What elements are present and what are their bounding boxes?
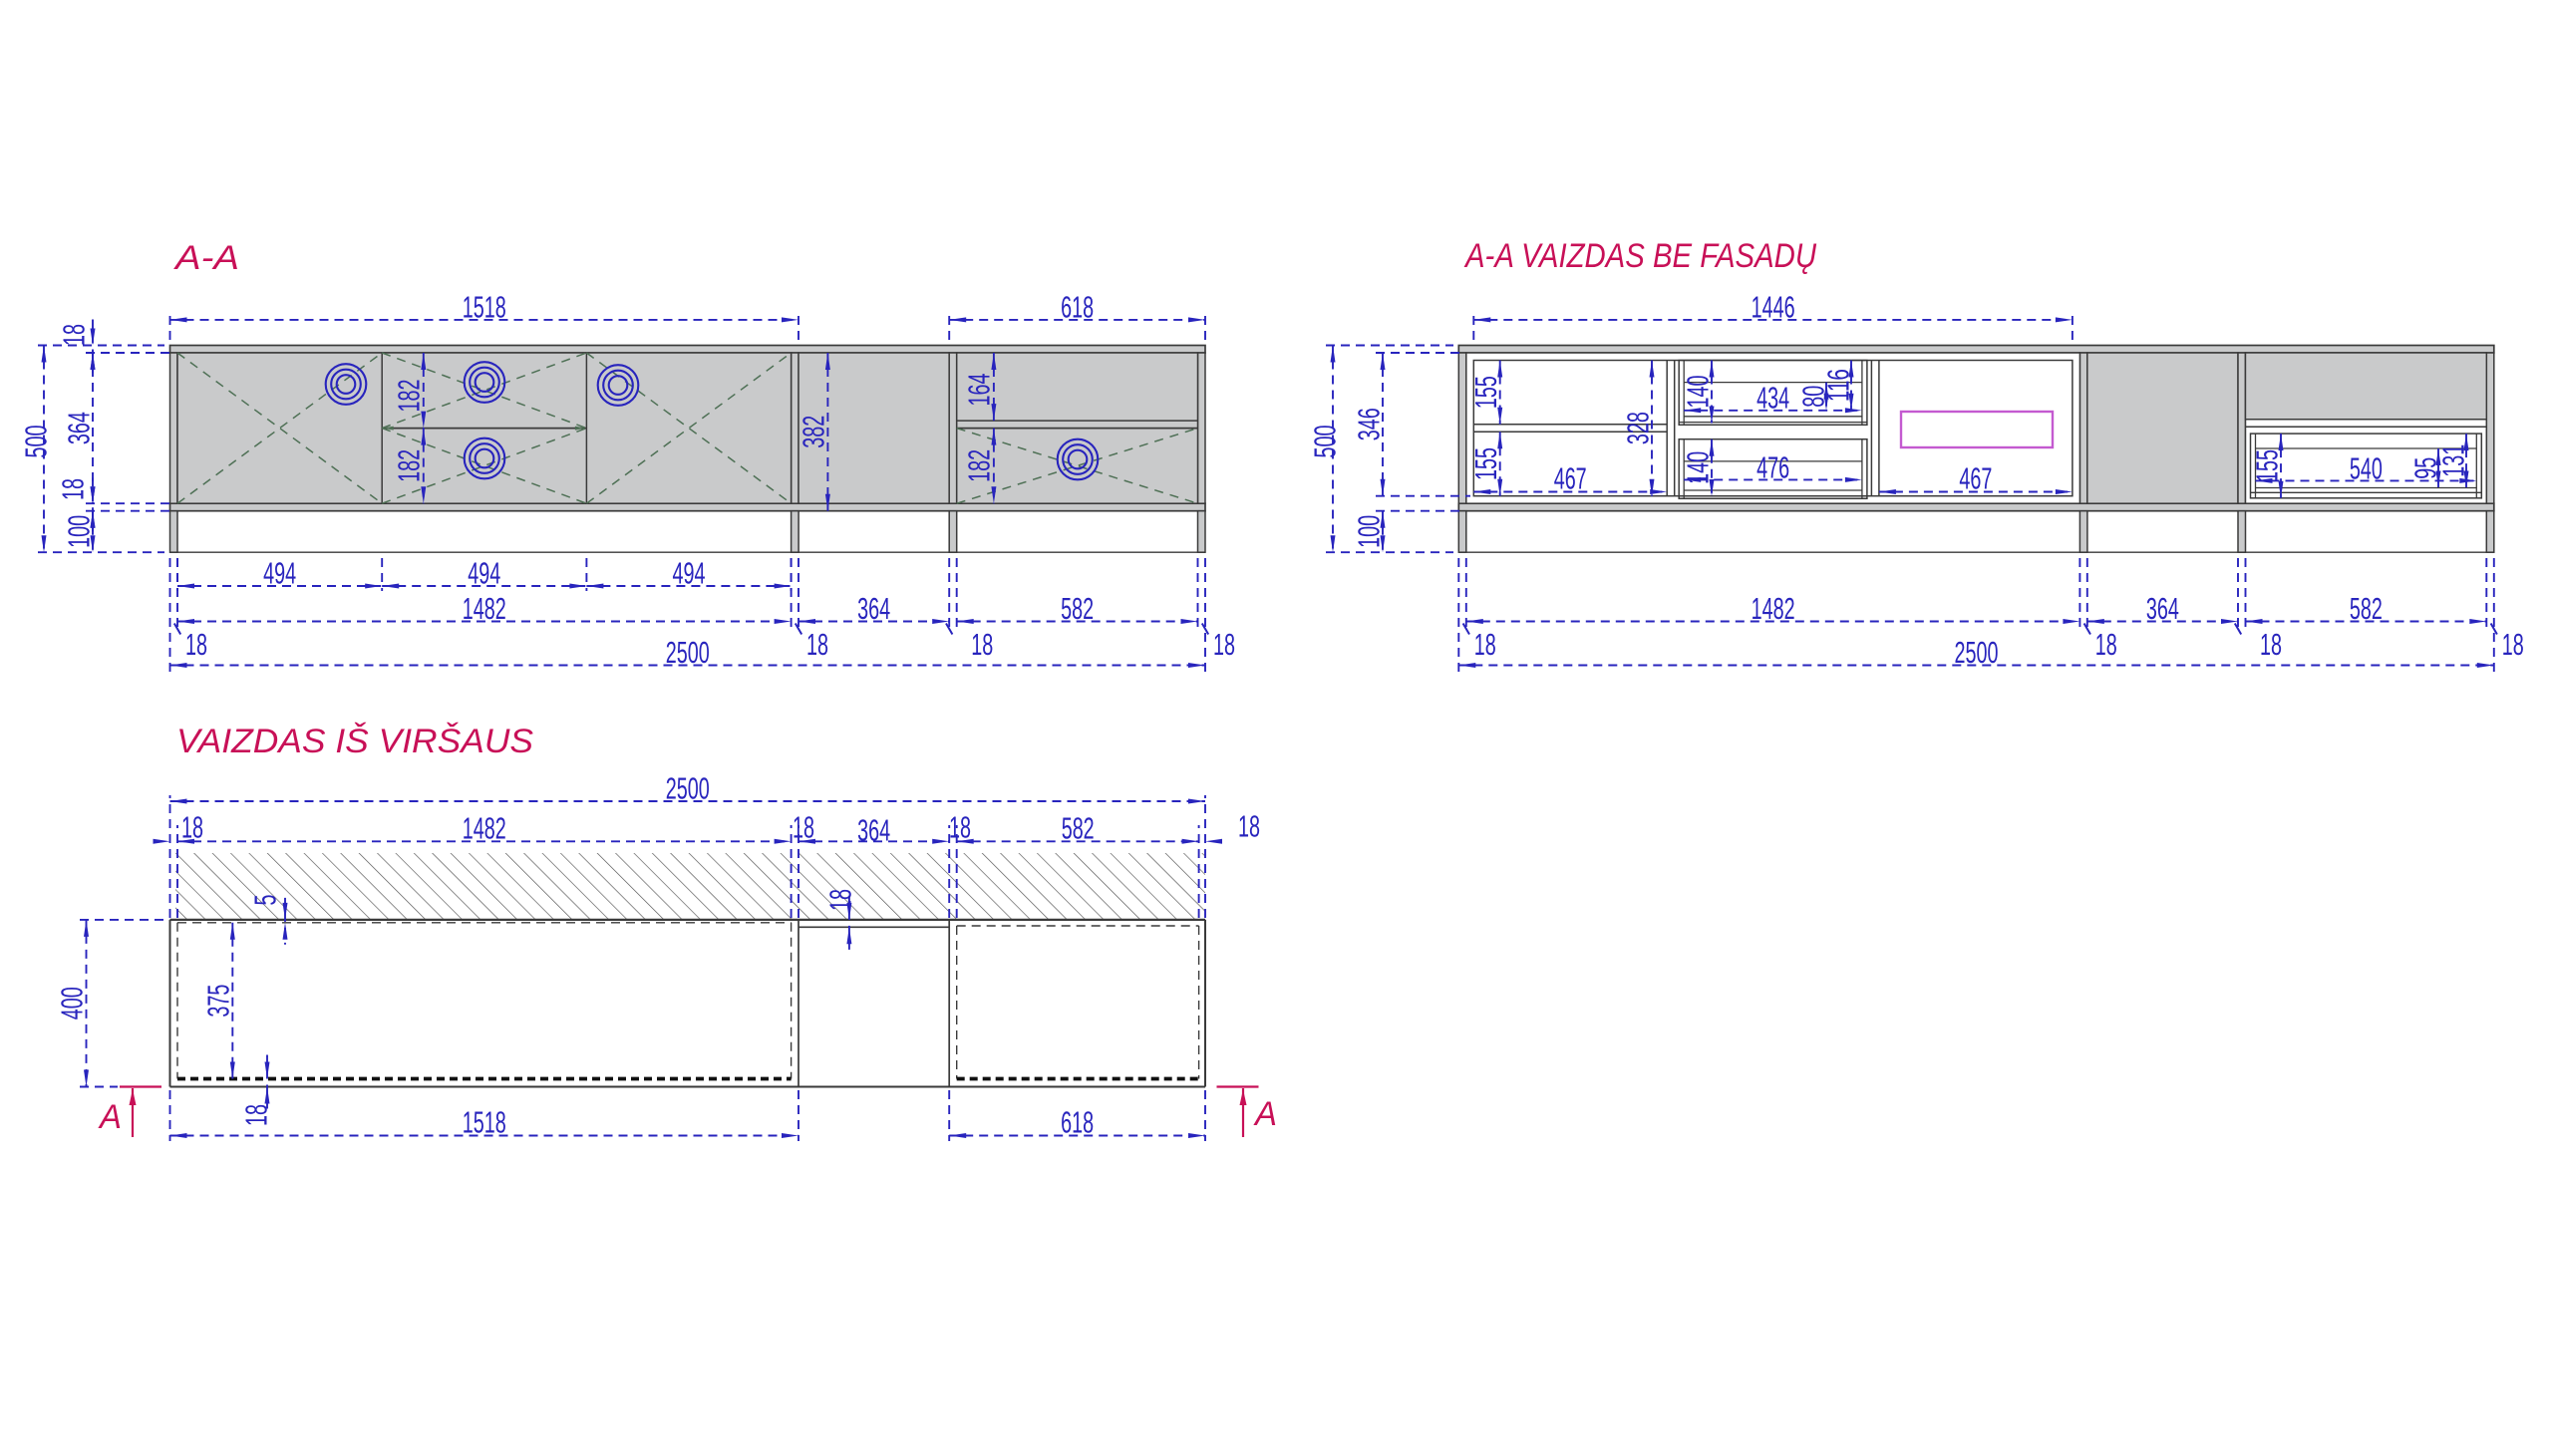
svg-text:618: 618 [1061,289,1094,324]
svg-text:18: 18 [239,1104,274,1126]
svg-text:1482: 1482 [463,591,506,626]
svg-text:18: 18 [57,324,92,346]
svg-text:18: 18 [56,478,91,500]
svg-text:155: 155 [1468,376,1503,409]
svg-text:364: 364 [62,412,97,444]
svg-text:18: 18 [181,810,203,845]
svg-text:155: 155 [1468,447,1503,480]
svg-text:116: 116 [1821,369,1856,402]
svg-text:18: 18 [1213,627,1235,662]
svg-text:494: 494 [263,556,296,591]
svg-text:434: 434 [1756,381,1789,416]
svg-text:18: 18 [806,627,828,662]
svg-text:155: 155 [2250,449,2285,482]
svg-text:500: 500 [19,426,54,458]
svg-text:467: 467 [1959,461,1992,496]
svg-text:100: 100 [62,515,97,548]
svg-text:140: 140 [1681,376,1716,409]
svg-text:364: 364 [2146,591,2179,626]
svg-text:494: 494 [468,556,500,591]
svg-text:1518: 1518 [463,1105,506,1140]
svg-text:18: 18 [2260,627,2282,662]
svg-text:467: 467 [1554,461,1587,496]
svg-text:182: 182 [392,380,427,413]
svg-text:182: 182 [392,449,427,482]
svg-text:1482: 1482 [463,811,506,846]
svg-text:346: 346 [1352,408,1387,440]
svg-text:540: 540 [2350,451,2383,486]
svg-text:500: 500 [1308,426,1343,458]
svg-text:A: A [1253,1095,1277,1133]
svg-text:18: 18 [1474,627,1496,662]
svg-text:2500: 2500 [666,635,710,670]
svg-text:18: 18 [823,889,858,911]
svg-text:18: 18 [971,627,993,662]
svg-text:364: 364 [857,591,890,626]
svg-text:18: 18 [793,810,814,845]
svg-text:328: 328 [1621,412,1656,444]
svg-text:18: 18 [1238,809,1260,844]
svg-text:18: 18 [2502,627,2524,662]
svg-text:364: 364 [857,813,890,848]
svg-text:18: 18 [2095,627,2117,662]
svg-text:A-A: A-A [173,239,239,277]
svg-text:18: 18 [949,810,971,845]
svg-text:2500: 2500 [1955,635,1999,670]
svg-text:476: 476 [1756,450,1789,485]
svg-text:582: 582 [1062,811,1095,846]
svg-text:582: 582 [2350,591,2383,626]
svg-text:1518: 1518 [463,289,506,324]
svg-text:382: 382 [797,416,831,448]
svg-text:100: 100 [1352,515,1387,548]
svg-text:182: 182 [962,449,997,482]
svg-text:131: 131 [2436,444,2471,477]
svg-text:400: 400 [55,987,90,1019]
svg-text:494: 494 [673,556,706,591]
svg-text:164: 164 [962,374,997,407]
svg-text:582: 582 [1061,591,1094,626]
svg-text:2500: 2500 [666,771,710,806]
svg-text:A: A [98,1098,122,1136]
svg-text:1446: 1446 [1752,289,1795,324]
svg-text:A-A VAIZDAS BE FASADŲ: A-A VAIZDAS BE FASADŲ [1463,237,1816,275]
svg-text:5: 5 [248,895,283,906]
svg-text:375: 375 [201,985,236,1018]
svg-text:618: 618 [1061,1105,1094,1140]
svg-text:18: 18 [185,627,207,662]
svg-text:1482: 1482 [1752,591,1795,626]
svg-text:VAIZDAS IŠ VIRŠAUS: VAIZDAS IŠ VIRŠAUS [176,723,533,760]
